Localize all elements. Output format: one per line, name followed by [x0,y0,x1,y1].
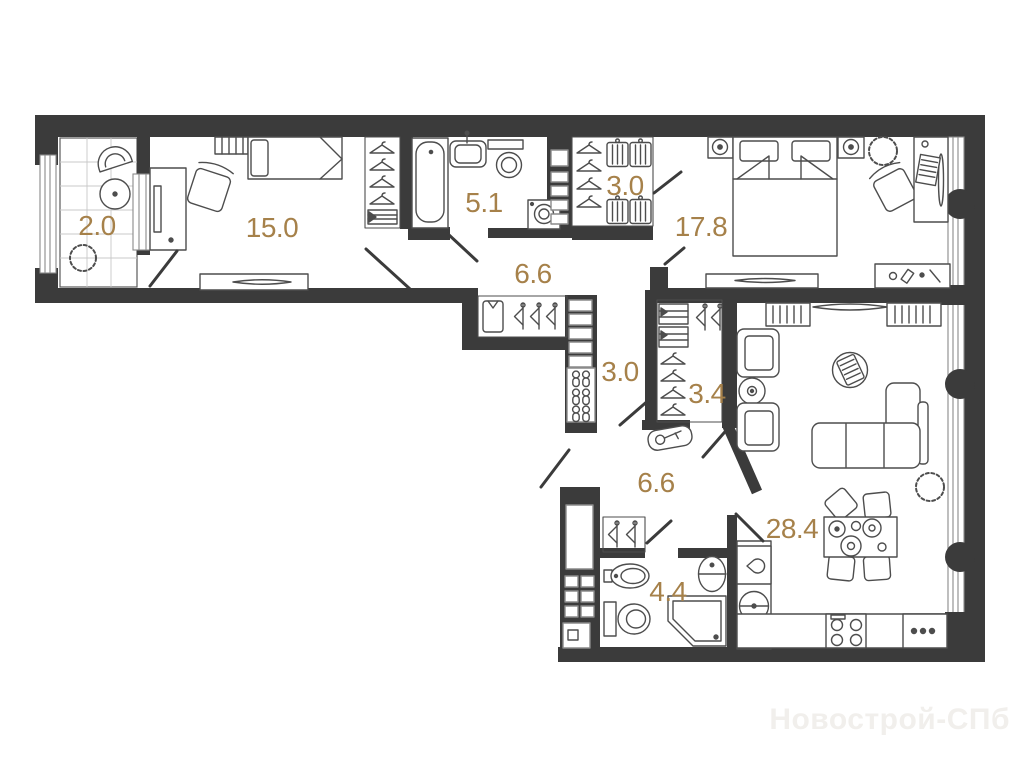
room15-shelf [215,137,248,154]
entry-niche [478,296,567,337]
room15-door [366,249,410,289]
floor-plan-image: 2.0 15.0 5.1 3.0 17.8 6.6 3.0 3.4 6.6 28… [0,0,1024,768]
armchair-2 [737,403,779,451]
room15-tv-stand [200,274,308,290]
dining-set [823,487,897,582]
room15-desk [150,168,186,250]
bath51-door [448,234,477,261]
utility-shafts [563,576,594,648]
entrance-door [566,505,593,569]
bedroom-door [665,248,684,264]
living-door-b [736,514,763,541]
toilet-44 [604,602,650,636]
armchair-1 [737,329,779,377]
dishwasher [903,614,947,648]
column [945,189,975,219]
column [945,542,975,572]
bath44-door [647,521,671,543]
bedroom-chair [868,160,918,213]
wardrobe30-door [654,172,681,193]
living-plant [916,473,944,501]
shower [668,596,726,646]
watermark: Новострой-СПб [769,703,1010,737]
balcony-glazing [40,155,56,273]
sofa [812,383,928,468]
bath51-toilet [488,140,523,178]
coat-rack [603,517,645,552]
sink-44 [699,557,727,592]
stove [826,614,866,648]
closet-34 [657,300,722,422]
bidet [604,564,649,588]
balcony-door [150,251,177,286]
column [945,369,975,399]
floor-plan-drawing [0,0,1024,768]
living-tv [813,304,887,310]
room15-chair [186,159,234,212]
bedroom-plant [869,137,897,165]
wardrobe-30 [572,137,653,226]
bedroom-desk [914,137,948,222]
balcony-table [100,179,130,209]
nightstand-left [708,137,733,158]
bedroom-tv-stand [706,274,818,288]
shoe-rack [567,368,595,422]
living-door-a [703,426,730,457]
double-bed [733,137,837,256]
side-table [739,378,765,404]
hallway-shelves [569,300,592,367]
tv-shelf-left [766,303,810,326]
bathtub [412,138,448,228]
bedroom-dresser [875,264,950,288]
room15-single-bed [248,137,342,179]
nightstand-right [838,137,864,158]
coffee-table [833,353,868,388]
room15-closet [365,137,400,228]
tv-shelf-right [887,303,941,326]
corridor-door [541,450,569,487]
